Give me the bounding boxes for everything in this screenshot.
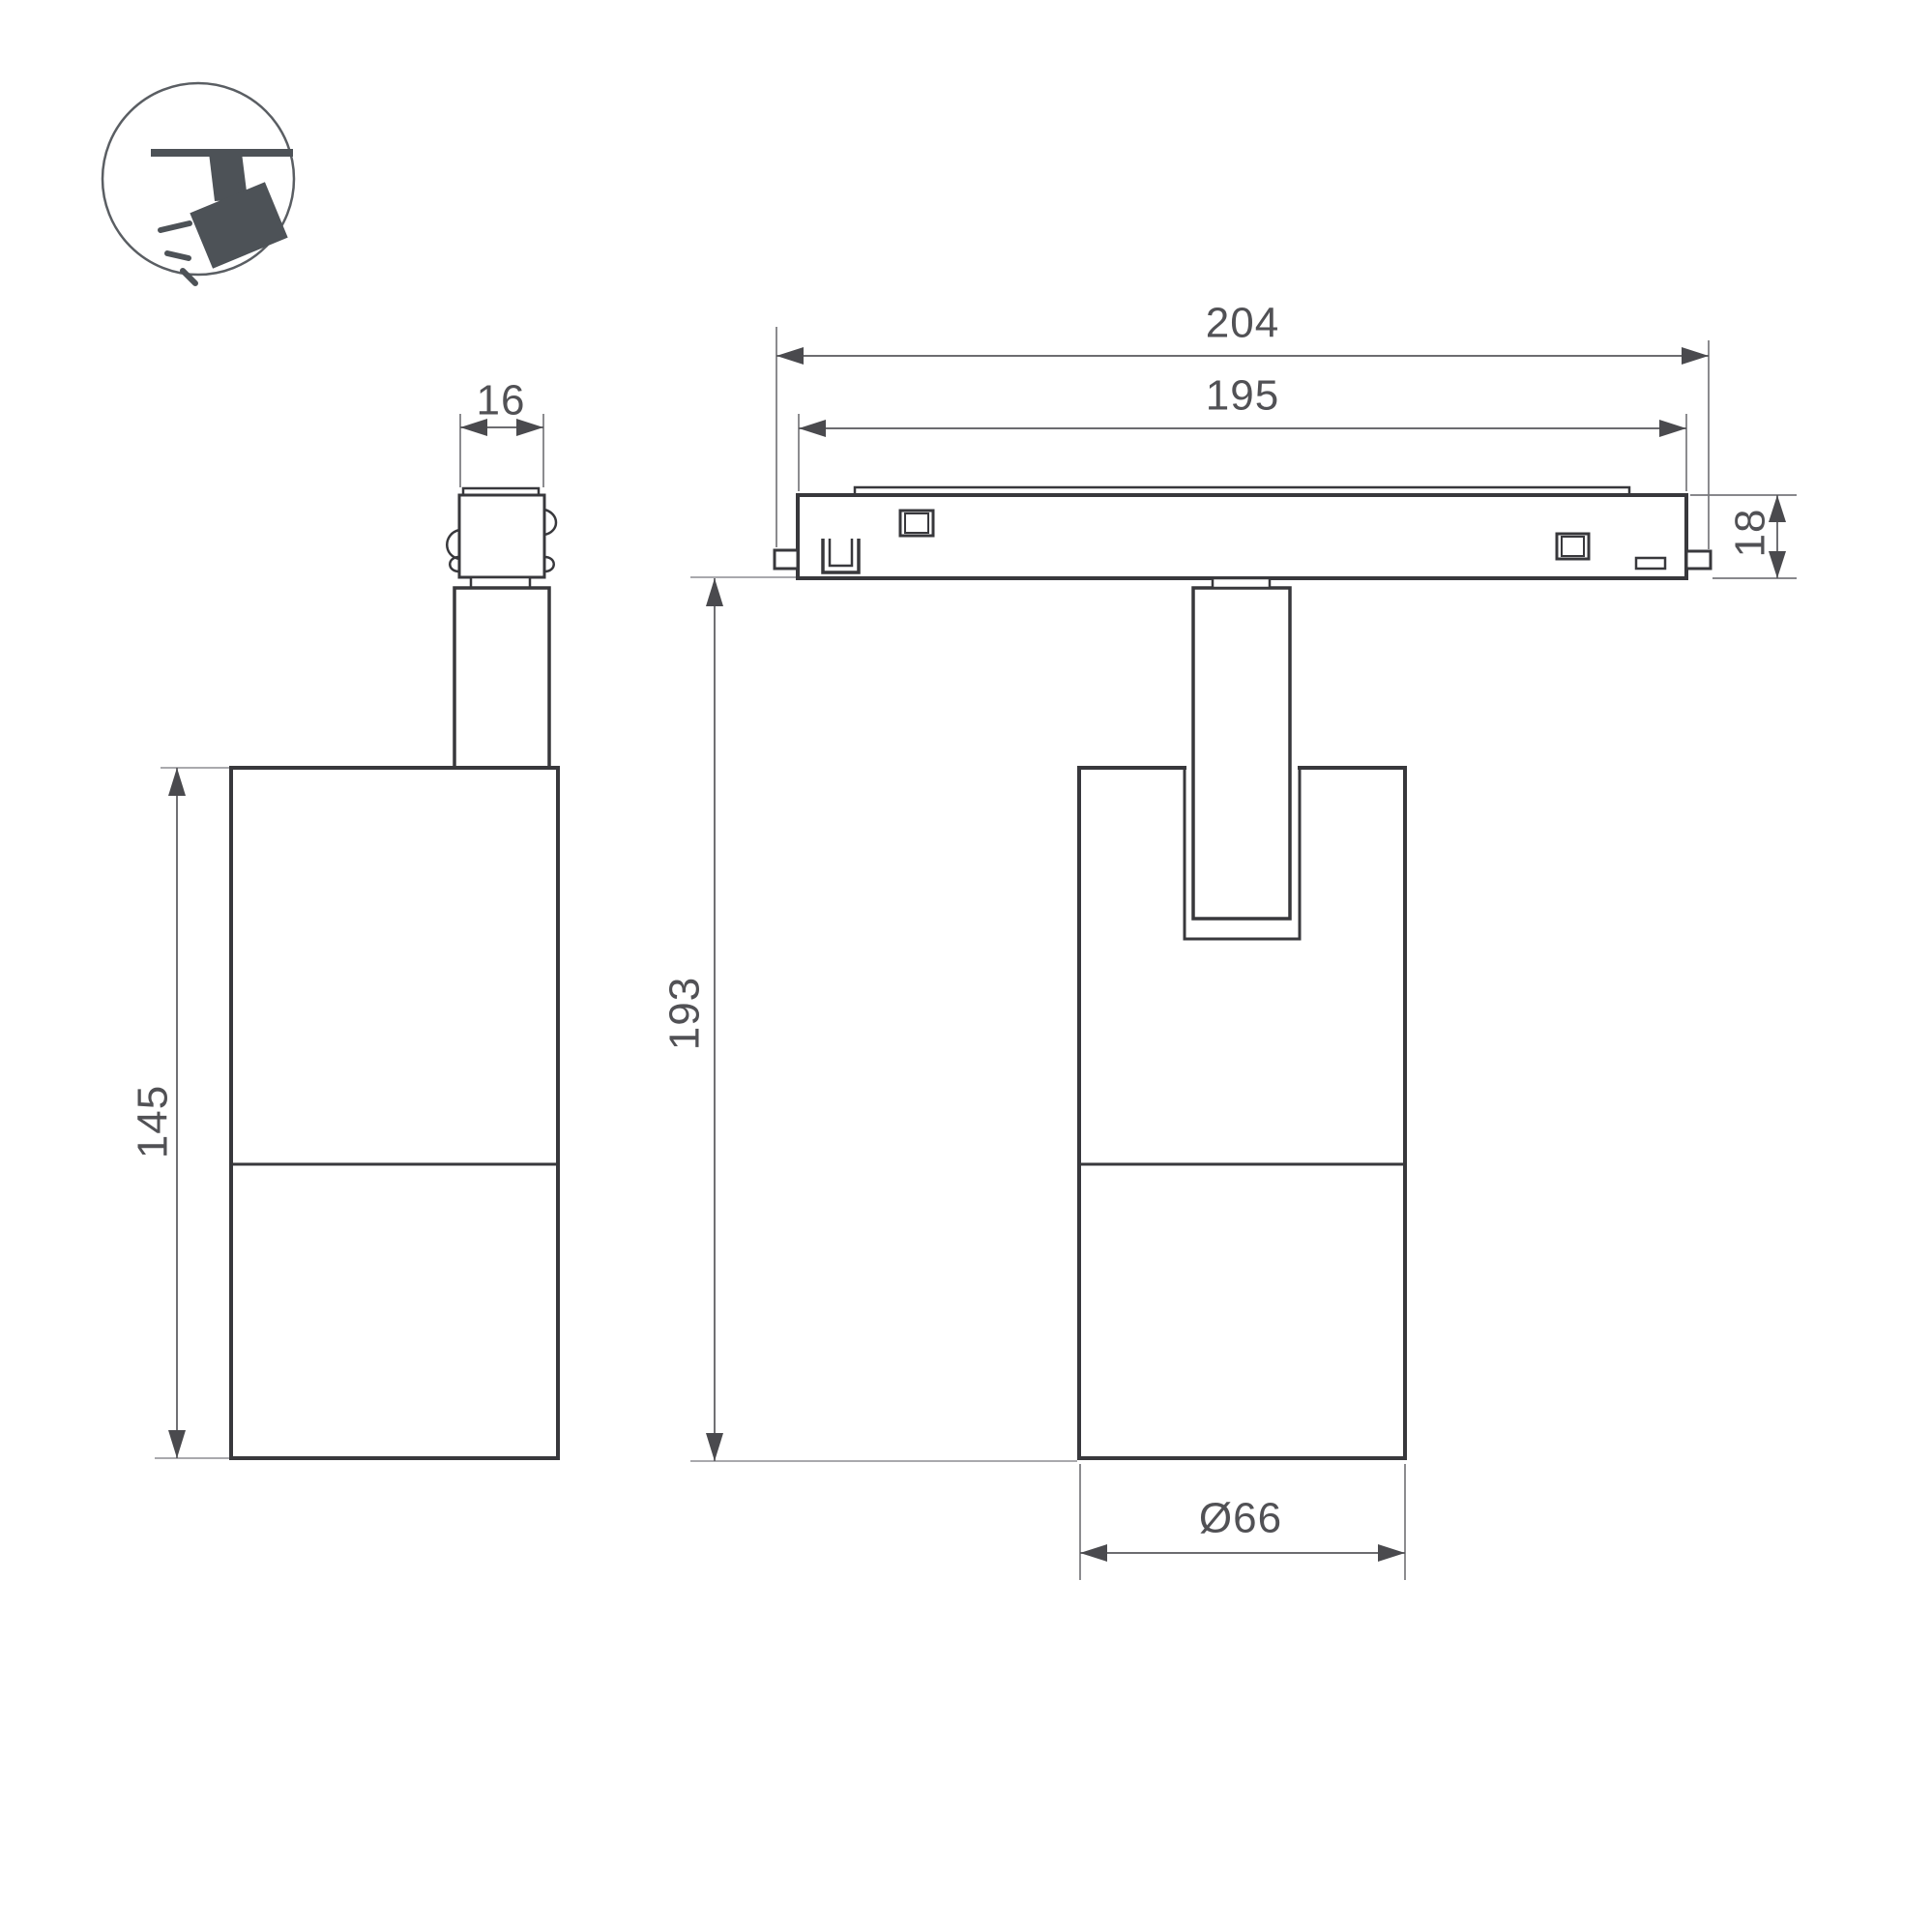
front-view — [775, 487, 1711, 1458]
arrow-down-icon — [168, 1430, 186, 1458]
stem-neck-front — [1213, 578, 1270, 588]
arrow-left-icon — [799, 420, 826, 437]
track-end-tab-left — [775, 550, 798, 569]
dim-label-track-outer-length: 204 — [1206, 300, 1279, 347]
arrow-right-icon — [1378, 1544, 1405, 1562]
spot-body-side — [231, 768, 558, 1458]
stem-side — [454, 588, 549, 769]
dimension-16: 16 — [460, 377, 543, 488]
track-connector-slot — [1636, 558, 1665, 569]
stem-front — [1193, 588, 1290, 919]
adapter-clip-right — [544, 510, 556, 535]
arrow-right-icon — [1682, 347, 1709, 365]
arrow-right-icon — [1659, 420, 1686, 437]
dimension-145: 145 — [130, 768, 230, 1458]
dim-label-track-inner-length: 195 — [1206, 372, 1279, 420]
dim-label-body-height: 145 — [130, 1085, 177, 1158]
arrow-up-icon — [168, 768, 186, 796]
track-adapter — [459, 495, 544, 577]
dim-label-adapter-width: 16 — [477, 377, 526, 424]
track-end-tab-right — [1686, 551, 1711, 569]
dimension-drawing-svg: 16 145 204 195 18 — [0, 0, 1932, 1932]
product-icon — [102, 83, 294, 283]
dim-label-body-diameter: Ø66 — [1199, 1495, 1282, 1542]
adapter-clip-left — [447, 530, 459, 559]
dimension-193: 193 — [661, 577, 1078, 1461]
arrow-up-icon — [706, 578, 723, 606]
dim-label-fixture-height: 193 — [661, 977, 709, 1050]
dim-label-track-height: 18 — [1727, 509, 1774, 558]
dimension-drawing-page: 16 145 204 195 18 — [0, 0, 1932, 1932]
track-window-right-inner — [1562, 537, 1584, 556]
track-window-left-inner — [905, 513, 928, 533]
dimension-195: 195 — [799, 372, 1686, 492]
dimension-66: Ø66 — [1080, 1464, 1405, 1580]
arrow-down-icon — [706, 1433, 723, 1461]
arrow-left-icon — [776, 347, 804, 365]
arrow-left-icon — [1080, 1544, 1107, 1562]
side-view — [231, 488, 558, 1458]
